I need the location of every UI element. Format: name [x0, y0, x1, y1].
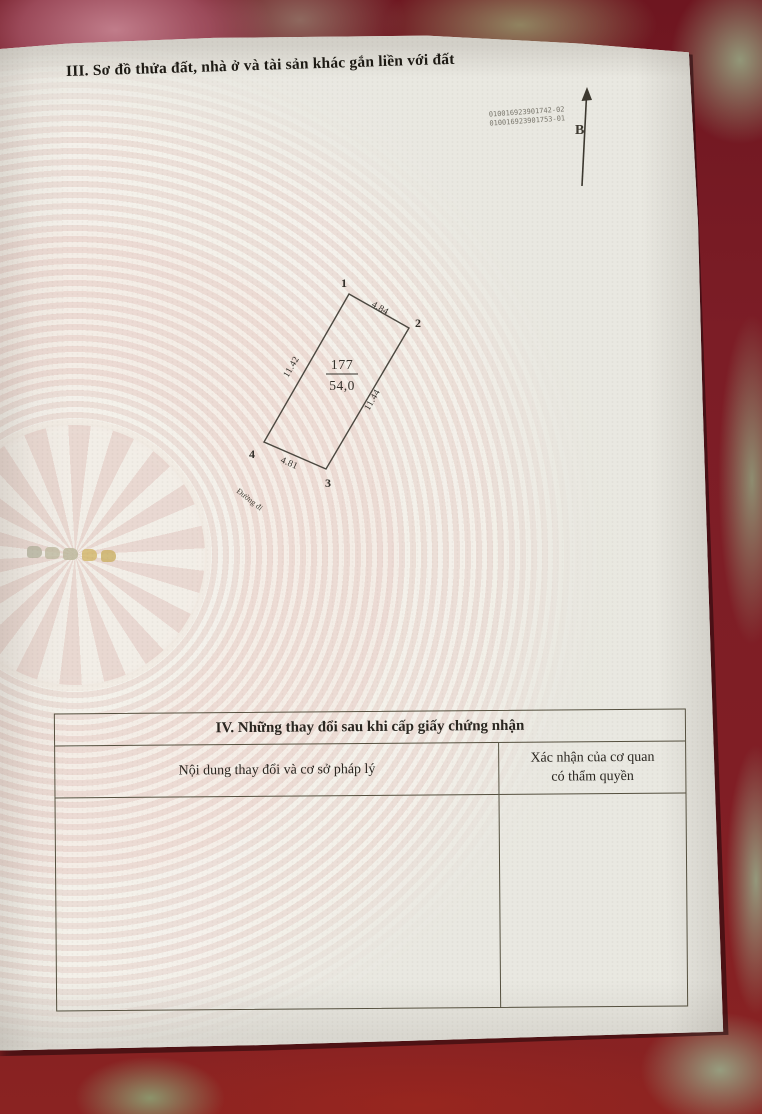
corner-1: 1	[341, 276, 347, 290]
parcel-number: 177	[331, 358, 354, 373]
corner-4: 4	[249, 447, 255, 461]
column-header-authority-confirmation: Xác nhận của cơ quan có thẩm quyền	[500, 742, 686, 794]
section4-title: IV. Những thay đổi sau khi cấp giấy chứn…	[55, 710, 685, 747]
parcel-diagram: 1 2 3 4 4.84 11.44 4.81 11.42 177 54,0 Đ…	[230, 266, 450, 516]
section4-table: IV. Những thay đổi sau khi cấp giấy chứn…	[54, 709, 688, 1012]
authority-header-line2: có thẩm quyền	[551, 767, 634, 786]
changes-empty-cell	[56, 795, 502, 1011]
authority-header-line1: Xác nhận của cơ quan	[530, 749, 654, 768]
certificate-page: III. Sơ đồ thửa đất, nhà ở và tài sản kh…	[0, 0, 762, 1114]
photo-of-land-certificate: III. Sơ đồ thửa đất, nhà ở và tài sản kh…	[0, 0, 762, 1114]
north-arrow-head	[582, 87, 593, 101]
road-label: Đường đi	[235, 486, 265, 512]
corner-2: 2	[415, 316, 421, 330]
north-arrow: B	[563, 86, 607, 194]
confirmation-empty-cell	[500, 794, 687, 1008]
edge-length-bottom: 4.81	[279, 456, 299, 472]
north-label: B	[575, 123, 584, 138]
parcel-area: 54,0	[329, 378, 355, 393]
edge-length-left: 11.42	[282, 355, 302, 380]
column-header-content-changes: Nội dung thay đổi và cơ sở pháp lý	[55, 743, 500, 797]
section3-title: III. Sơ đồ thửa đất, nhà ở và tài sản kh…	[66, 49, 526, 81]
corner-3: 3	[325, 476, 331, 490]
